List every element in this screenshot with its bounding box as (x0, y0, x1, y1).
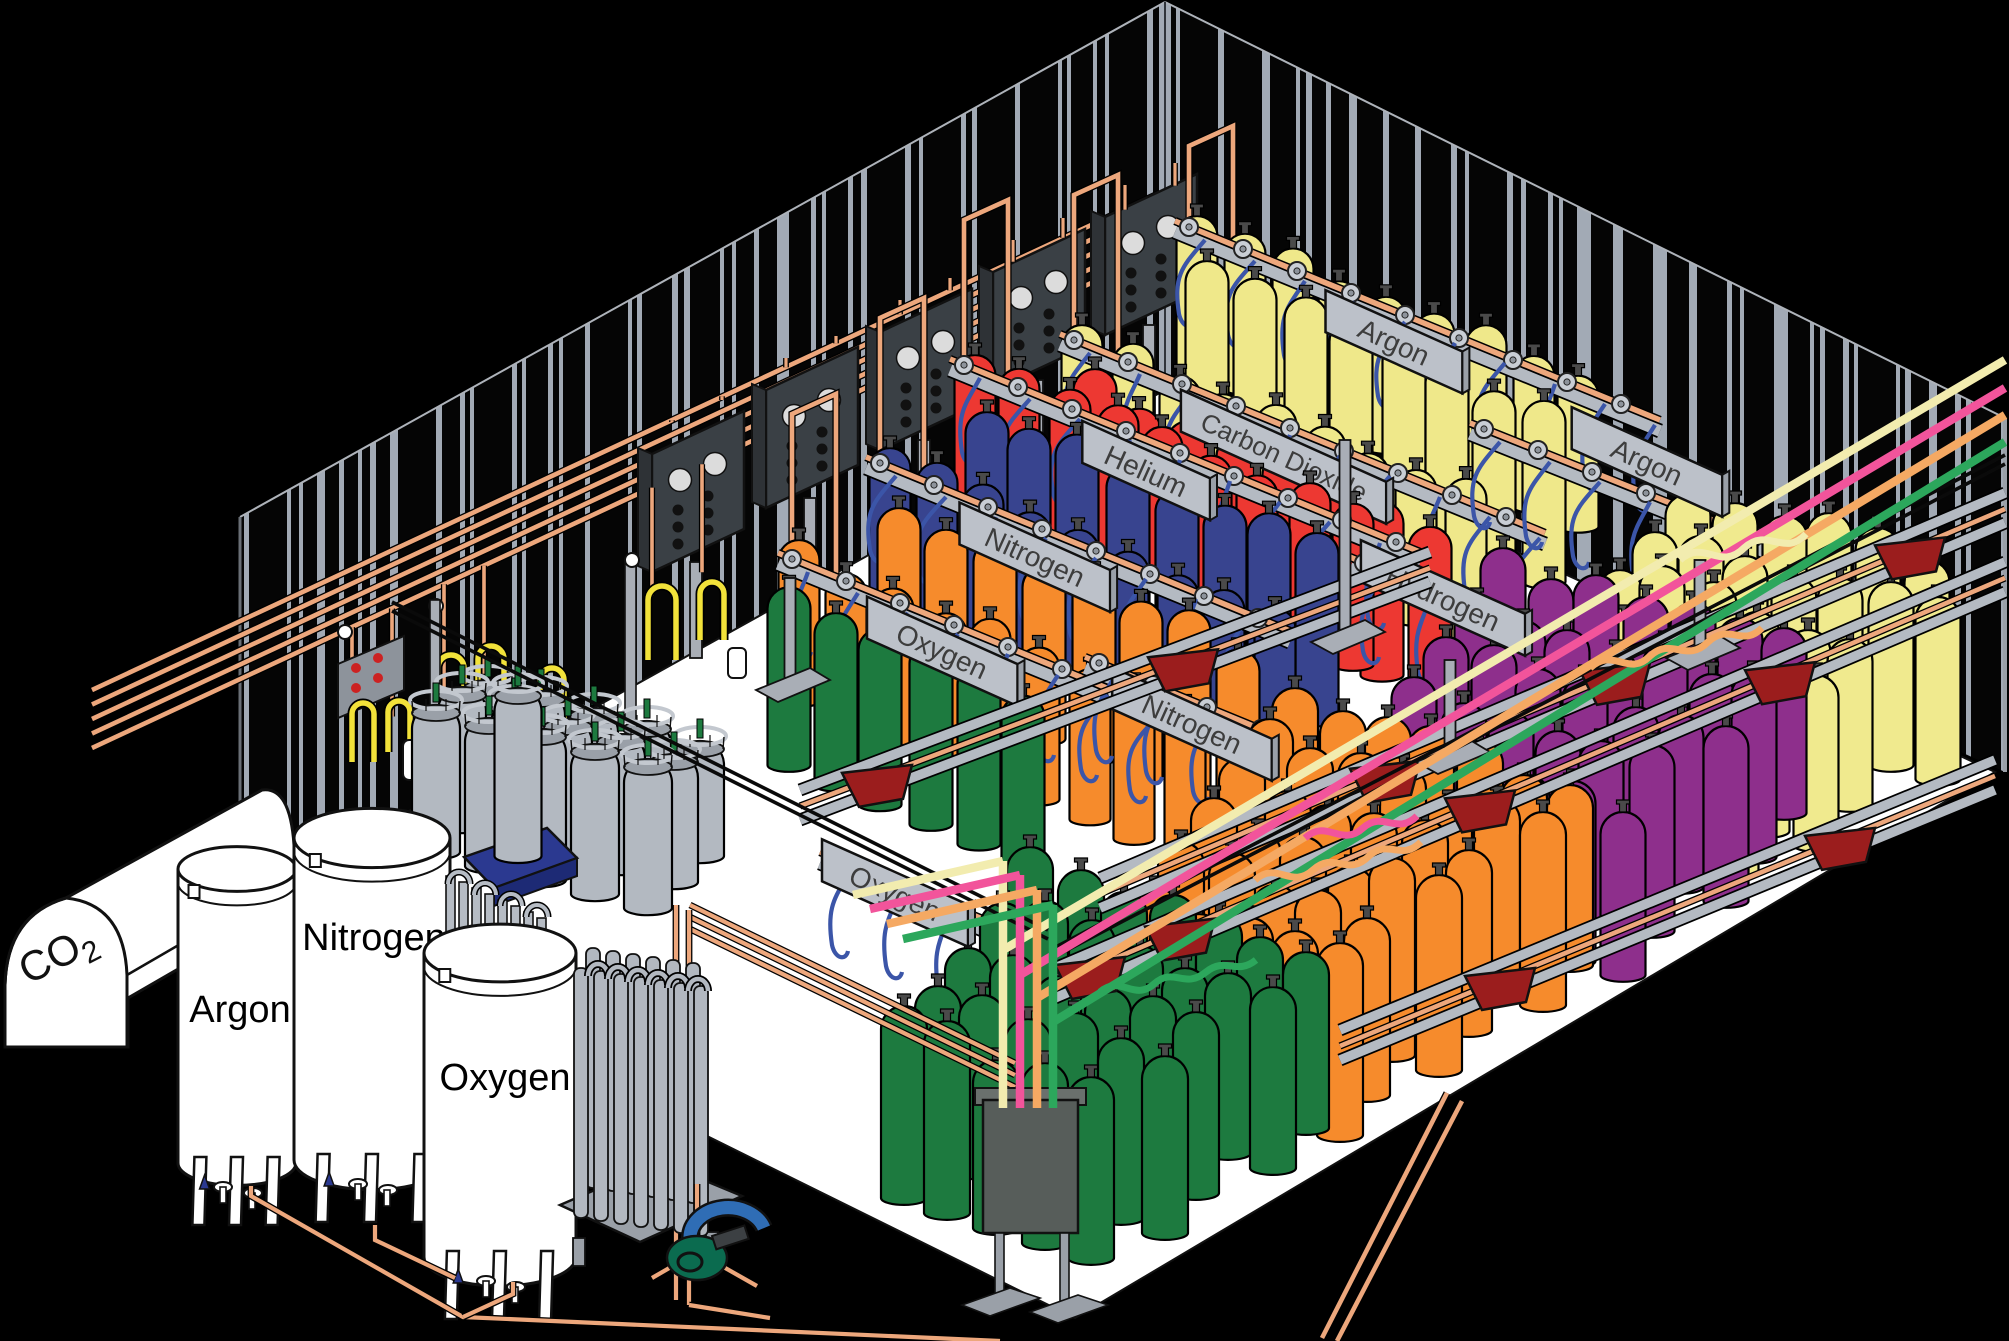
svg-text:Argon: Argon (189, 989, 290, 1031)
svg-text:Oxygen: Oxygen (440, 1057, 571, 1099)
